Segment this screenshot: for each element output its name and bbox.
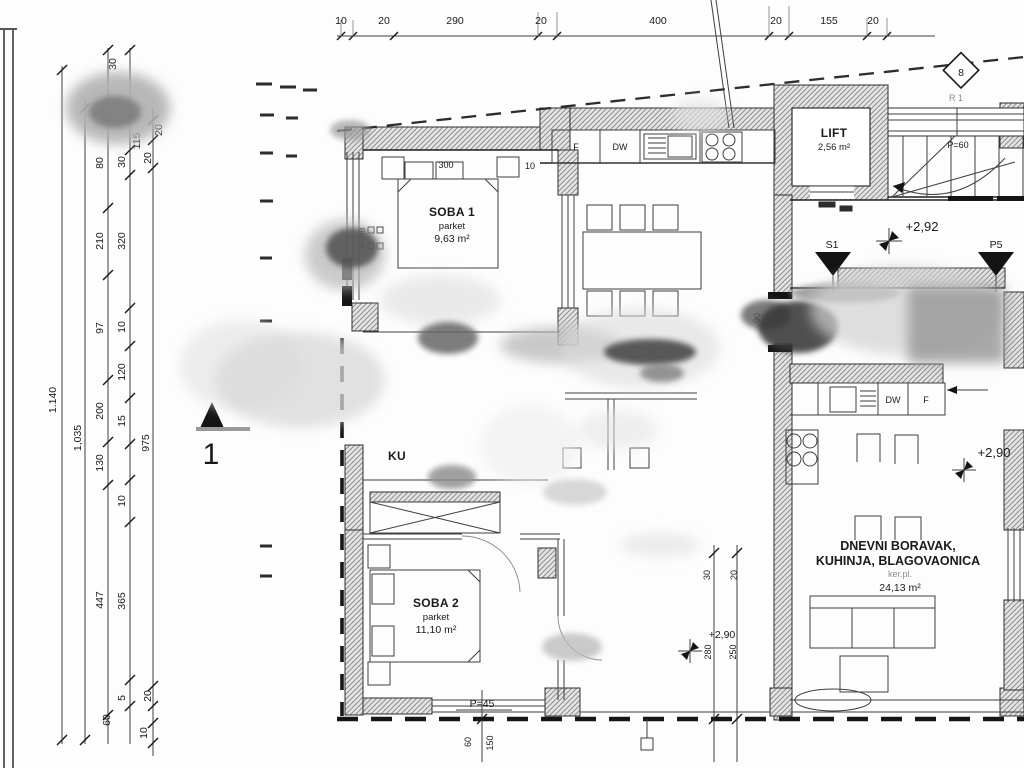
wall-mid-lower	[774, 344, 792, 720]
wall-soba2-left	[345, 530, 363, 715]
wall-right-upper	[1004, 292, 1024, 368]
left-dim-overall: 1.140	[47, 387, 59, 413]
fridge-label: F	[923, 395, 929, 405]
bottom-symbol-square	[641, 738, 653, 750]
left-dimension-block: 1.140 1,035 30 80 115 30 20 20 210 320 9…	[47, 45, 165, 756]
left-dim-label: 320	[116, 232, 128, 250]
left-dim-label: 30	[107, 58, 119, 70]
wall-step	[540, 108, 570, 150]
dim-60: 60	[463, 737, 473, 747]
pillow	[372, 626, 394, 656]
top-dim-label: 400	[649, 15, 667, 27]
elevation-crosshair	[952, 458, 976, 482]
wall-kitchen2-top	[790, 364, 943, 383]
left-dim-label: 120	[116, 363, 128, 381]
dim-300: 300	[438, 160, 453, 170]
left-dim-label: 20	[142, 690, 154, 702]
nightstand	[368, 545, 390, 568]
mid-bottom-dims: 30 20 280 250 +2,90	[678, 545, 742, 762]
wall-right-lower	[1004, 600, 1024, 690]
dining-table	[583, 205, 701, 316]
dishwasher-label: DW	[886, 395, 901, 405]
dim-20: 20	[729, 570, 739, 580]
bath-label-fragment: KU	[388, 449, 406, 463]
dim-10: 10	[525, 161, 535, 171]
wall-mid-upper	[774, 195, 792, 298]
lift-name: LIFT	[821, 126, 848, 140]
left-dim-label: 30	[116, 156, 128, 168]
table	[583, 232, 701, 289]
chair	[855, 516, 881, 540]
pillow	[372, 574, 394, 604]
top-dim-label: 20	[867, 15, 879, 27]
living-room: DW F +2,90 DNEVNI BORAVAK, KUHINJA, BLAG…	[786, 383, 1010, 711]
top-dim-label: 10	[335, 15, 347, 27]
wall-left-mid	[345, 445, 363, 530]
wall-bottom-mid	[770, 688, 792, 716]
wall-soba1-right-upper	[558, 150, 578, 195]
left-dim-label: 60	[101, 714, 113, 726]
living-name-line1: DNEVNI BORAVAK,	[840, 539, 956, 553]
chair	[895, 517, 921, 540]
wall-soba2-bottom-right	[545, 688, 580, 716]
room-floor: parket	[423, 612, 450, 623]
fridge-label: F	[573, 142, 579, 152]
sink	[644, 134, 696, 159]
marker-s1-label: S1	[826, 239, 839, 251]
wall-soba1-top	[345, 127, 570, 150]
left-dim-label: 365	[116, 592, 128, 610]
top-dim-label: 20	[378, 15, 390, 27]
lift-area: 2,56 m²	[818, 142, 850, 153]
elevation-crosshair	[876, 228, 902, 254]
chair	[587, 205, 612, 230]
elevation-room: +2,90	[709, 629, 736, 641]
door-jamb	[768, 292, 792, 299]
door-arrow	[947, 386, 957, 394]
top-dim-label: 20	[535, 15, 547, 27]
marker-p5-label: P5	[990, 239, 1003, 251]
wall-soba2-top-stub	[538, 548, 556, 578]
dim-280: 280	[703, 644, 713, 659]
left-dim-label: 15	[116, 415, 128, 427]
room-area: 9,63 m²	[434, 233, 470, 245]
room-name: SOBA 2	[413, 596, 459, 610]
left-dim-label: 80	[94, 157, 106, 169]
left-dim-label: 447	[94, 591, 106, 609]
floor-plan-drawing: 10 20 290 20 400 20 155 20 1.140 1,035 3…	[0, 0, 1024, 768]
sink-bowl	[830, 387, 856, 412]
wardrobe	[370, 492, 500, 533]
wall-left-stub	[352, 303, 378, 331]
coffee-table	[840, 656, 888, 692]
floor-plan-sheet: 10 20 290 20 400 20 155 20 1.140 1,035 3…	[0, 0, 1024, 768]
dim-150: 150	[485, 735, 495, 750]
top-dimension-chain: 10 20 290 20 400 20 155 20	[335, 6, 935, 40]
top-dim-guides	[341, 6, 887, 36]
room-name: SOBA 1	[429, 205, 475, 219]
wall-kitchen-top	[540, 108, 775, 130]
living-floor: ker.pl.	[888, 569, 912, 579]
left-dim-label: 10	[116, 495, 128, 507]
dim-250: 250	[728, 644, 738, 659]
top-dim-label: 155	[820, 15, 838, 27]
sofa	[810, 596, 935, 648]
left-dim-label: 1,035	[72, 425, 84, 451]
living-area: 24,13 m²	[879, 582, 921, 594]
stool	[895, 435, 918, 464]
top-dim-label: 20	[770, 15, 782, 27]
section-marker-number: 1	[203, 438, 220, 471]
left-dim-label: 975	[140, 434, 152, 452]
kitchen-right: DW F +2,90	[786, 383, 1010, 484]
room-area: 11,10 m²	[416, 624, 457, 636]
chair	[620, 205, 645, 230]
room-floor: parket	[439, 221, 466, 232]
dishwasher-label: DW	[613, 142, 628, 152]
left-dim-label: 10	[116, 321, 128, 333]
nightstand	[382, 157, 404, 179]
stove	[702, 132, 742, 162]
left-dim-label: 20	[142, 152, 154, 164]
elevation-hall: +2,92	[906, 219, 939, 234]
door-arc-soba2	[462, 536, 520, 592]
page-border	[0, 29, 17, 768]
stair-label-p60: P=60	[947, 140, 968, 150]
top-dim-label: 290	[446, 15, 464, 27]
room-soba2: SOBA 2 parket 11,10 m² P=45 60 150	[368, 545, 512, 762]
chair	[653, 205, 678, 230]
elevation-crosshair	[678, 639, 702, 663]
stool	[857, 434, 880, 462]
dim-30: 30	[702, 570, 712, 580]
lift: LIFT 2,56 m²	[792, 108, 870, 199]
left-dim-label: 130	[94, 454, 106, 472]
wall-soba2-bottom-left	[363, 698, 432, 714]
kitchen-top: F DW	[552, 130, 775, 316]
left-dim-label: 5	[116, 695, 128, 701]
stair-direction-arrow	[893, 158, 1005, 194]
living-name-line2: KUHINJA, BLAGOVAONICA	[816, 554, 980, 568]
left-dim-label: 97	[94, 322, 106, 334]
detail-diamond-label: 8	[958, 67, 964, 79]
pillow	[405, 162, 433, 179]
left-dim-label: 10	[138, 727, 150, 739]
nightstand	[368, 662, 390, 685]
left-dim-label: 200	[94, 402, 106, 420]
elevation-kitchen: +2,90	[978, 445, 1011, 460]
nightstand	[497, 157, 519, 177]
left-dim-label: 210	[94, 232, 106, 250]
stair-label-r: R 1	[949, 93, 963, 103]
